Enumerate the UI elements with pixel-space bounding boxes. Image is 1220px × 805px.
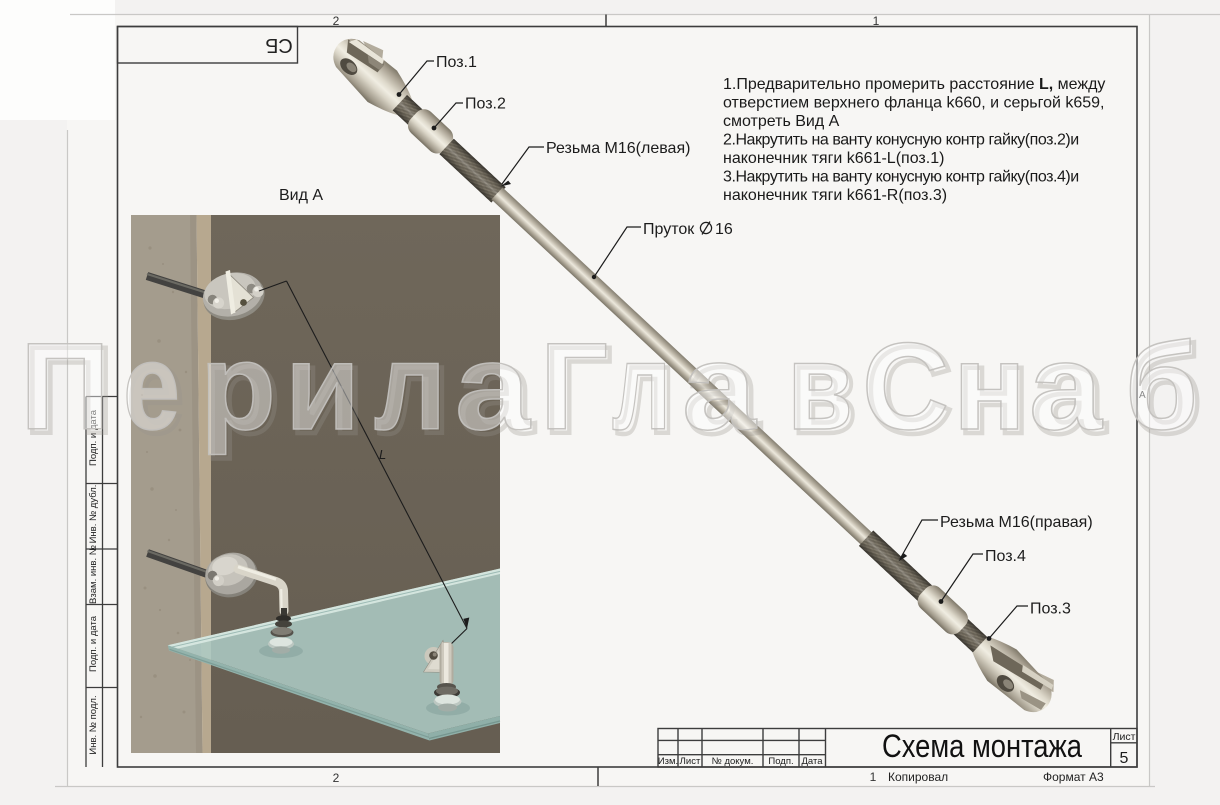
svg-text:Пруток: Пруток: [643, 221, 695, 238]
svg-text:Дата: Дата: [801, 756, 823, 767]
svg-text:16: 16: [715, 221, 733, 238]
svg-text:наконечник тяги k661-R(поз.3): наконечник тяги k661-R(поз.3): [723, 187, 947, 204]
svg-text:Поз.3: Поз.3: [1030, 601, 1071, 618]
svg-text:1.Предварительно промерить рас: 1.Предварительно промерить расстояние L,…: [723, 76, 1105, 93]
svg-text:2: 2: [333, 14, 340, 28]
svg-text:2: 2: [333, 771, 340, 785]
svg-text:3.Накрутить на ванту конусную: 3.Накрутить на ванту конусную контр гайк…: [723, 169, 1079, 186]
svg-text:Формат А3: Формат А3: [1043, 770, 1104, 784]
svg-text:2.Накрутить на ванту конусную: 2.Накрутить на ванту конусную контр гайк…: [723, 132, 1079, 149]
svg-text:Поз.2: Поз.2: [465, 96, 506, 113]
svg-text:№ докум.: № докум.: [712, 756, 754, 767]
svg-text:Взам. инв. №: Взам. инв. №: [88, 545, 99, 604]
svg-text:Схема монтажа: Схема монтажа: [882, 728, 1082, 764]
svg-text:Резьма М16(правая): Резьма М16(правая): [940, 514, 1093, 531]
svg-text:отверстием верхнего фланца k66: отверстием верхнего фланца k660, и серьг…: [723, 95, 1105, 112]
svg-text:Поз.1: Поз.1: [436, 54, 477, 71]
svg-text:5: 5: [1120, 750, 1129, 767]
svg-text:Вид А: Вид А: [279, 187, 323, 204]
svg-text:смотреть Вид А: смотреть Вид А: [723, 113, 840, 130]
svg-text:1: 1: [873, 14, 880, 28]
svg-text:Изм.: Изм.: [658, 756, 678, 767]
svg-text:Копировал: Копировал: [888, 770, 948, 784]
svg-text:Лист: Лист: [680, 756, 701, 767]
svg-text:Лист: Лист: [1113, 731, 1136, 743]
svg-text:Подп. и дата: Подп. и дата: [88, 615, 99, 672]
svg-text:Поз.4: Поз.4: [985, 548, 1026, 565]
svg-text:Подп.: Подп.: [768, 756, 793, 767]
svg-text:наконечник тяги k661-L(поз.1): наконечник тяги k661-L(поз.1): [723, 150, 944, 167]
svg-text:1: 1: [870, 770, 877, 784]
svg-text:Резьма М16(левая): Резьма М16(левая): [546, 140, 690, 157]
svg-text:Инв. № подл.: Инв. № подл.: [88, 695, 99, 754]
svg-text:Инв. № дубл.: Инв. № дубл.: [88, 485, 99, 544]
svg-text:СБ: СБ: [265, 34, 293, 56]
